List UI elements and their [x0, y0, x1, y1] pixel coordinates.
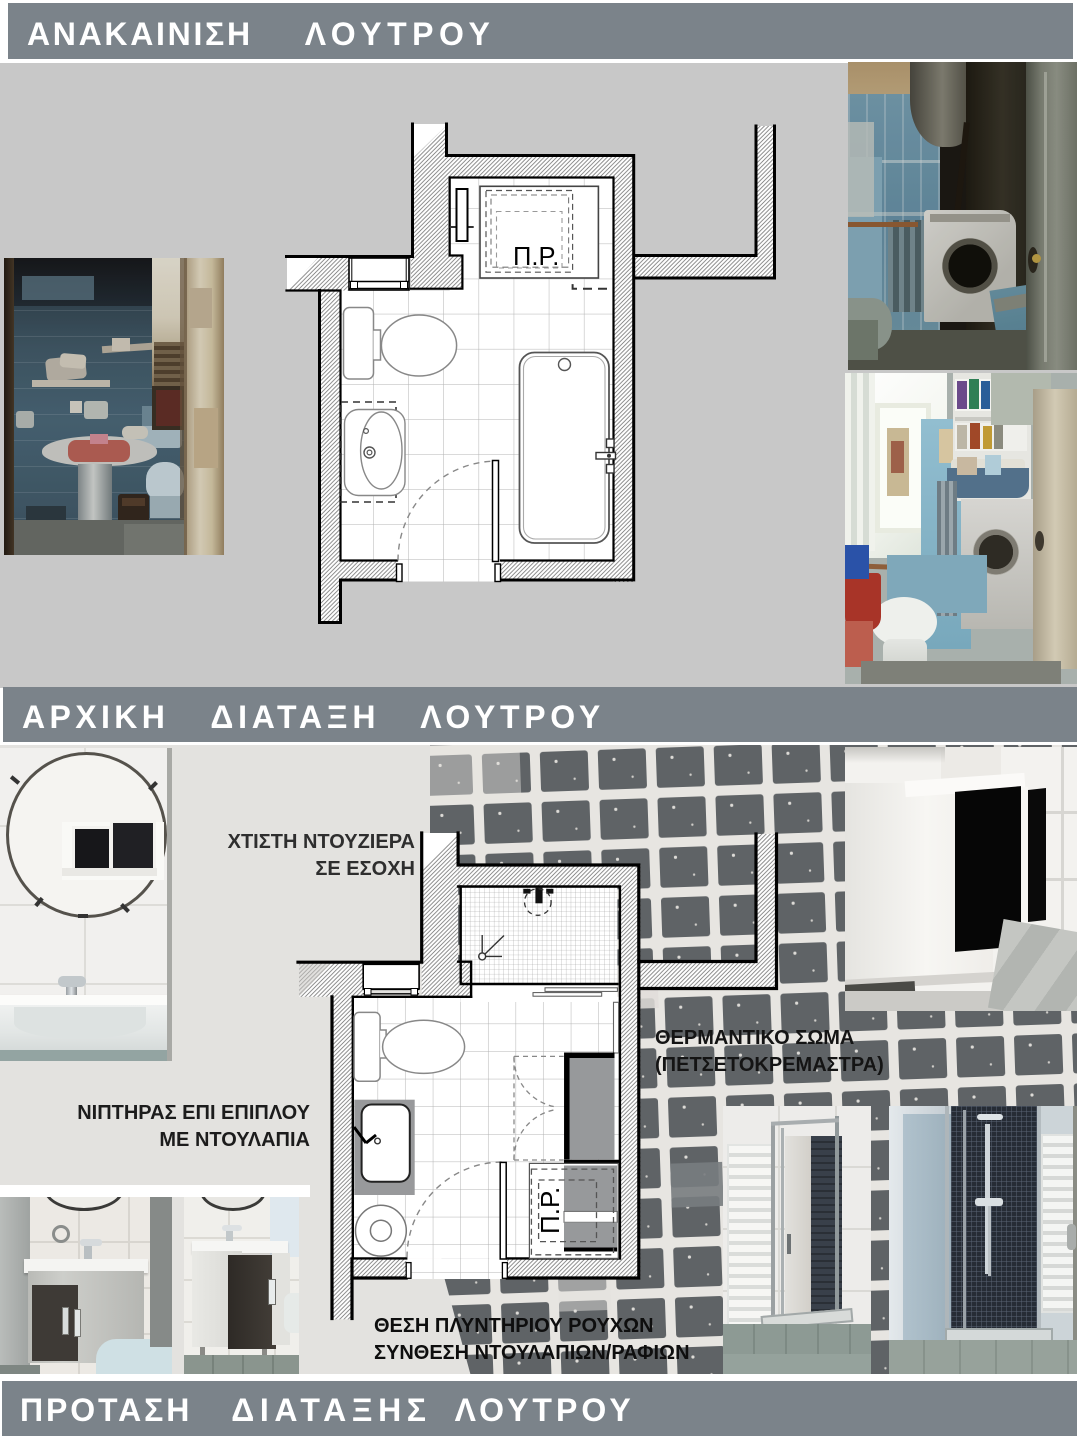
svg-text:Π.Ρ.: Π.Ρ.	[535, 1187, 565, 1234]
svg-text:Π.Ρ.: Π.Ρ.	[513, 243, 559, 271]
